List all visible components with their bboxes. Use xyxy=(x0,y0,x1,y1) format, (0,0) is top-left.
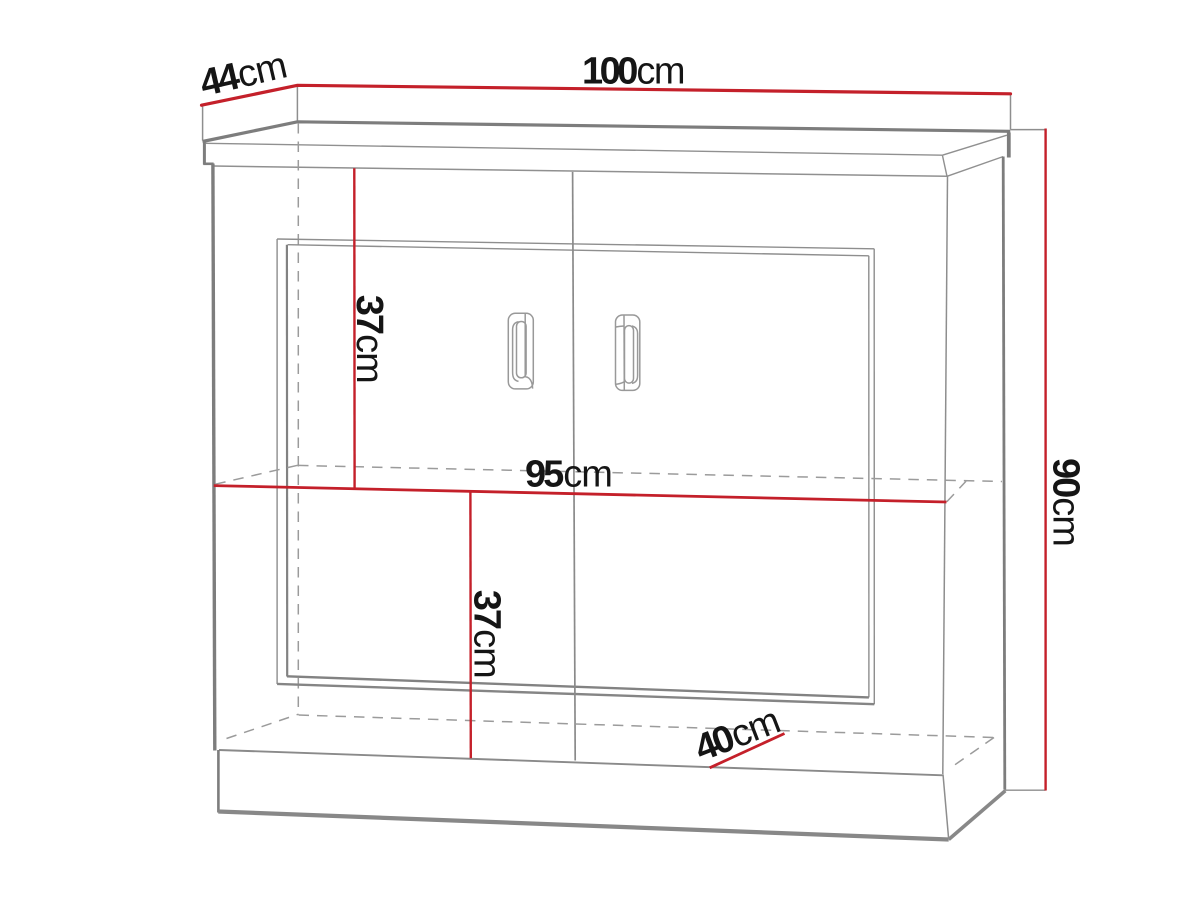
svg-text:95cm: 95cm xyxy=(525,454,612,496)
svg-text:90cm: 90cm xyxy=(1045,458,1087,546)
svg-text:37cm: 37cm xyxy=(348,295,390,383)
svg-text:40cm: 40cm xyxy=(689,700,785,770)
svg-text:44cm: 44cm xyxy=(196,45,290,105)
svg-text:37cm: 37cm xyxy=(466,590,508,678)
svg-text:100cm: 100cm xyxy=(582,51,684,93)
